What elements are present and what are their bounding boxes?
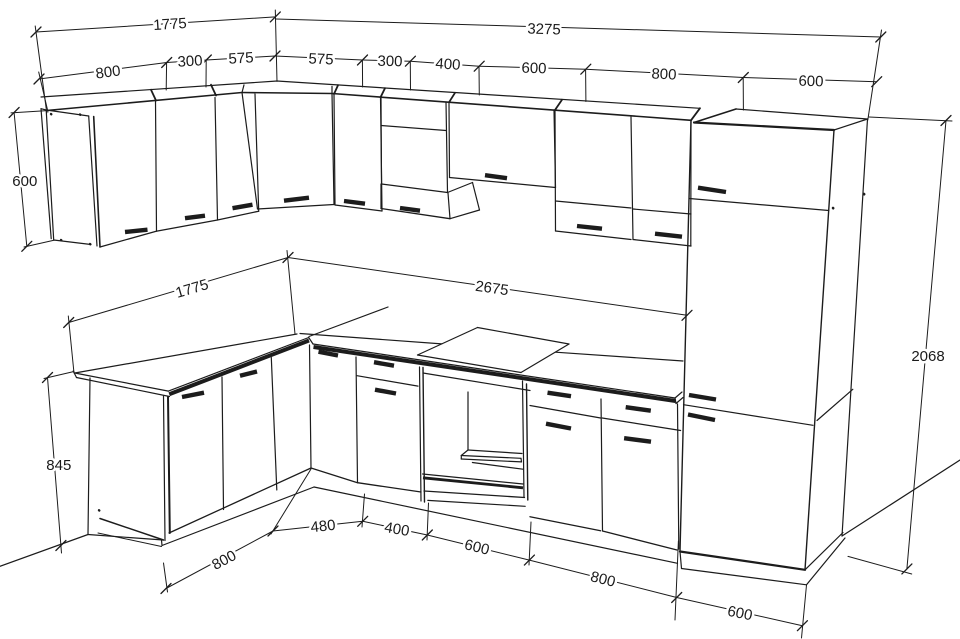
svg-text:1775: 1775 bbox=[174, 276, 211, 302]
svg-text:2068: 2068 bbox=[911, 348, 944, 365]
svg-text:2675: 2675 bbox=[474, 278, 509, 300]
svg-text:575: 575 bbox=[228, 49, 254, 67]
svg-text:480: 480 bbox=[310, 517, 337, 537]
svg-text:800: 800 bbox=[589, 568, 617, 590]
svg-text:600: 600 bbox=[12, 173, 37, 190]
svg-text:575: 575 bbox=[308, 50, 334, 68]
svg-text:600: 600 bbox=[798, 73, 824, 91]
svg-text:300: 300 bbox=[377, 53, 402, 71]
svg-text:600: 600 bbox=[463, 536, 491, 558]
svg-text:800: 800 bbox=[651, 65, 677, 83]
svg-text:1775: 1775 bbox=[153, 15, 187, 34]
svg-text:400: 400 bbox=[383, 519, 411, 540]
svg-text:600: 600 bbox=[726, 603, 754, 625]
svg-text:300: 300 bbox=[177, 52, 203, 71]
svg-text:600: 600 bbox=[521, 60, 546, 78]
svg-text:845: 845 bbox=[46, 457, 71, 474]
svg-text:800: 800 bbox=[95, 62, 122, 82]
svg-text:400: 400 bbox=[435, 55, 461, 74]
svg-text:3275: 3275 bbox=[527, 21, 561, 39]
